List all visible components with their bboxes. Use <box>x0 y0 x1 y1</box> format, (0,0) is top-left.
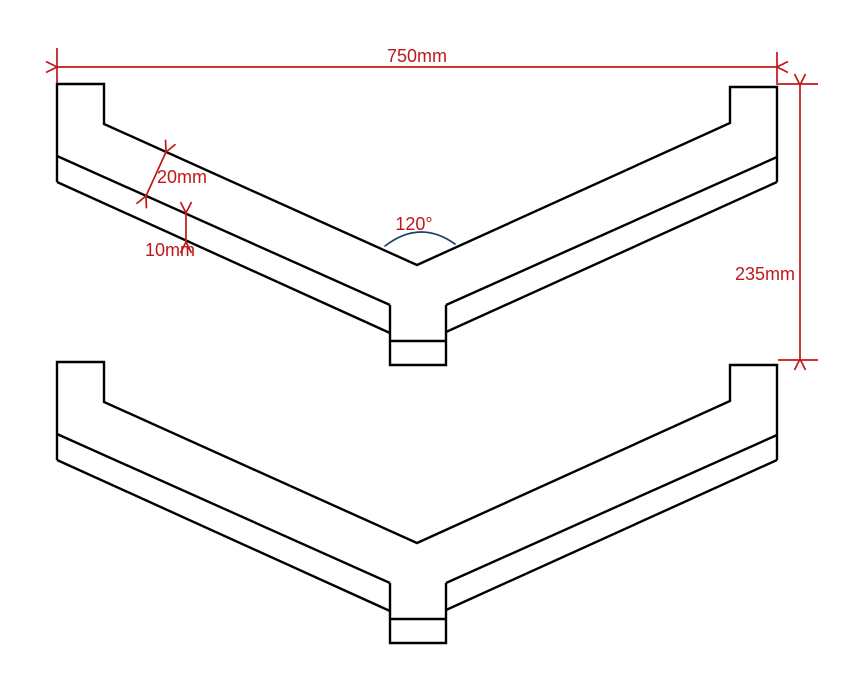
lower-thickness-label: 10mm <box>145 240 195 260</box>
drawing-page: 750mm 235mm 20mm 10mm 120° <box>0 0 845 681</box>
overall-height-label: 235mm <box>735 264 795 284</box>
technical-drawing: 750mm 235mm 20mm 10mm 120° <box>0 0 845 681</box>
angle-arc <box>385 232 455 246</box>
dim-overall-width: 750mm <box>57 46 777 85</box>
bend-angle-label: 120° <box>395 214 432 234</box>
upper-thickness-label: 20mm <box>157 167 207 187</box>
part-bottom-view <box>57 362 777 643</box>
angle-annotation: 120° <box>385 214 455 246</box>
dim-upper-thickness: 20mm <box>146 152 207 196</box>
dim-lower-thickness: 10mm <box>145 213 195 260</box>
overall-width-label: 750mm <box>387 46 447 66</box>
